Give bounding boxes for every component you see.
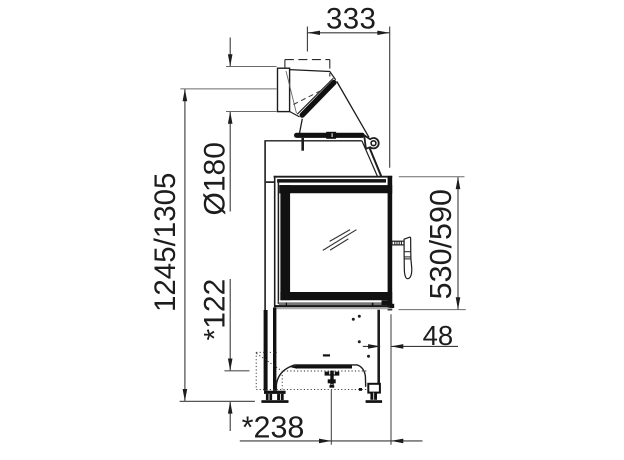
svg-text:530/590: 530/590 [424,189,458,299]
svg-text:Ø180: Ø180 [198,142,231,215]
svg-text:*122: *122 [198,279,231,341]
svg-text:333: 333 [326,2,376,35]
svg-text:1245/1305: 1245/1305 [149,173,182,312]
svg-text:*238: *238 [242,410,305,444]
